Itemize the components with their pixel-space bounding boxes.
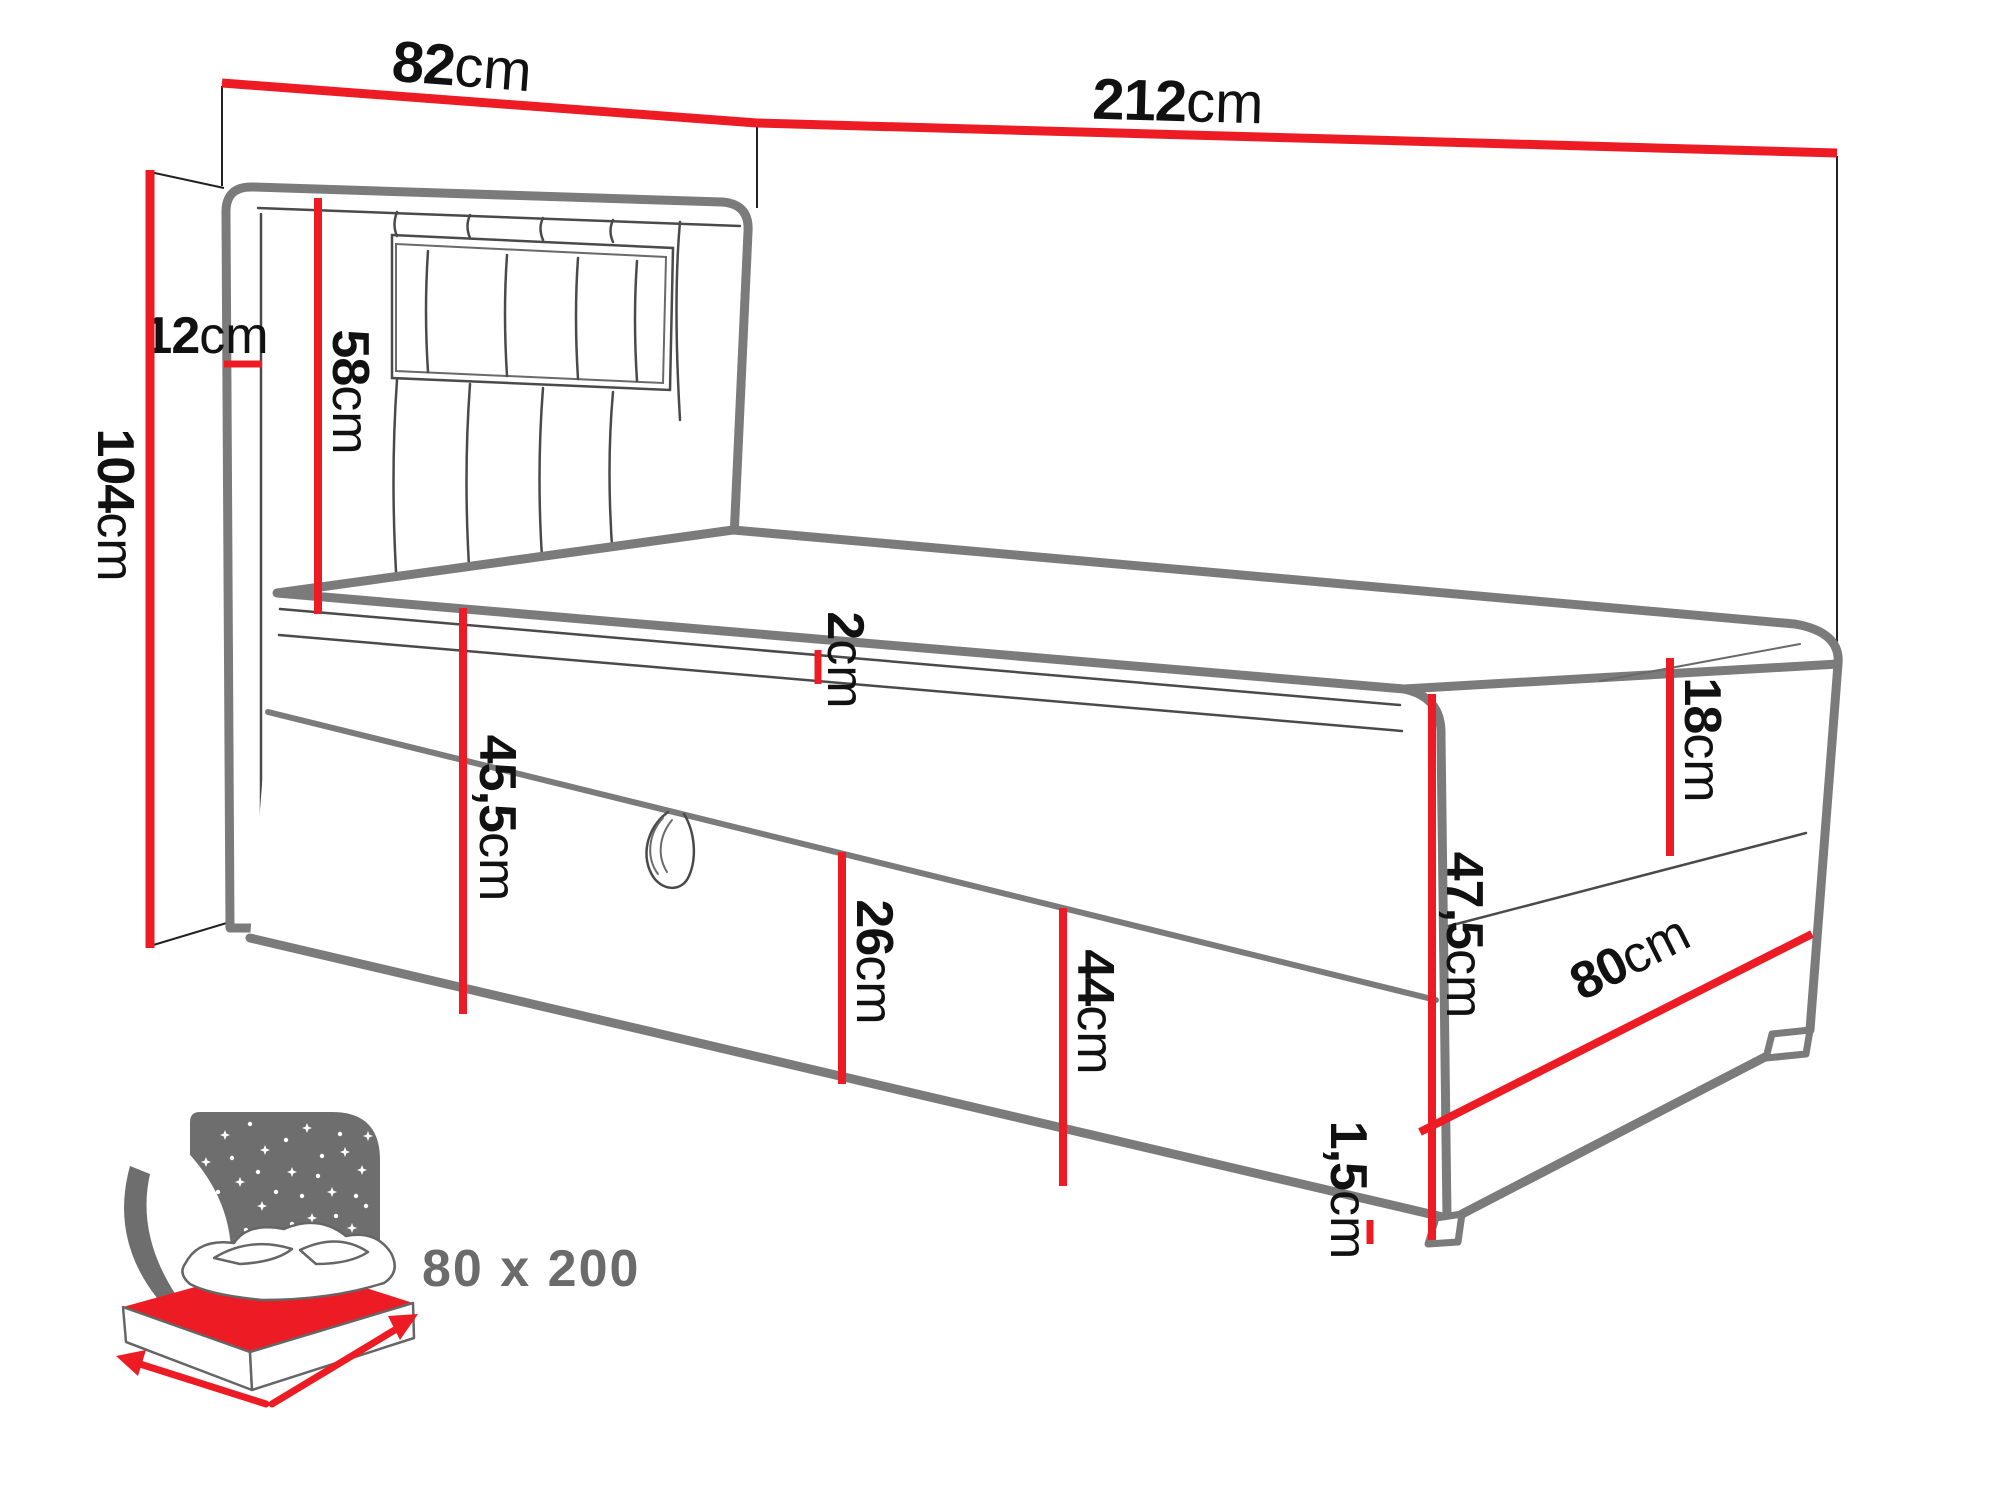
dimension-label: 12cm bbox=[143, 307, 268, 365]
dimension-topper-height: 2cm bbox=[816, 611, 874, 708]
star-dot-icon bbox=[338, 1132, 342, 1136]
star-dot-icon bbox=[300, 1194, 304, 1198]
dimension-label: 82cm bbox=[390, 28, 534, 103]
dimension-label: 212cm bbox=[1092, 66, 1265, 136]
star-dot-icon bbox=[216, 1190, 220, 1194]
dimension-label: 44cm bbox=[1066, 949, 1124, 1074]
diagram-canvas: 82cm 212cm 12cm 104cm 58cm 2cm 45,5cm 2 bbox=[0, 0, 2000, 1500]
bed-foot-rear bbox=[1766, 1030, 1810, 1058]
sleeping-area-icon: 80 x 200 bbox=[116, 1112, 640, 1404]
star-dot-icon bbox=[320, 1154, 324, 1158]
dimension-label: 58cm bbox=[321, 329, 379, 454]
star-dot-icon bbox=[274, 1190, 278, 1194]
dimension-total-height: 104cm bbox=[86, 170, 150, 948]
dimension-headboard-depth: 12cm bbox=[143, 307, 268, 365]
dimension-label: 104cm bbox=[86, 428, 144, 581]
star-dot-icon bbox=[284, 1138, 288, 1142]
sleeping-area-label: 80 x 200 bbox=[422, 1240, 640, 1298]
star-dot-icon bbox=[334, 1214, 338, 1218]
star-dot-icon bbox=[230, 1156, 234, 1160]
bed-drawing bbox=[226, 187, 1838, 1244]
dimension-label: 18cm bbox=[1673, 677, 1731, 802]
star-dot-icon bbox=[364, 1204, 368, 1208]
bed-dimension-diagram: 82cm 212cm 12cm 104cm 58cm 2cm 45,5cm 2 bbox=[0, 0, 2000, 1500]
star-dot-icon bbox=[256, 1170, 260, 1174]
dimension-total-length: 212cm bbox=[757, 66, 1837, 153]
dimension-feet-height: 1,5cm bbox=[1319, 1121, 1377, 1260]
star-dot-icon bbox=[248, 1122, 252, 1126]
dimension-label: 47,5cm bbox=[1435, 852, 1493, 1019]
dimension-label: 1,5cm bbox=[1319, 1121, 1377, 1260]
dimension-label: 26cm bbox=[845, 899, 903, 1024]
dimension-headboard-width: 82cm bbox=[222, 28, 757, 123]
star-dot-icon bbox=[316, 1174, 320, 1178]
star-dot-icon bbox=[354, 1194, 358, 1198]
dimension-label: 45,5cm bbox=[468, 735, 526, 902]
dimension-label: 2cm bbox=[816, 611, 874, 708]
